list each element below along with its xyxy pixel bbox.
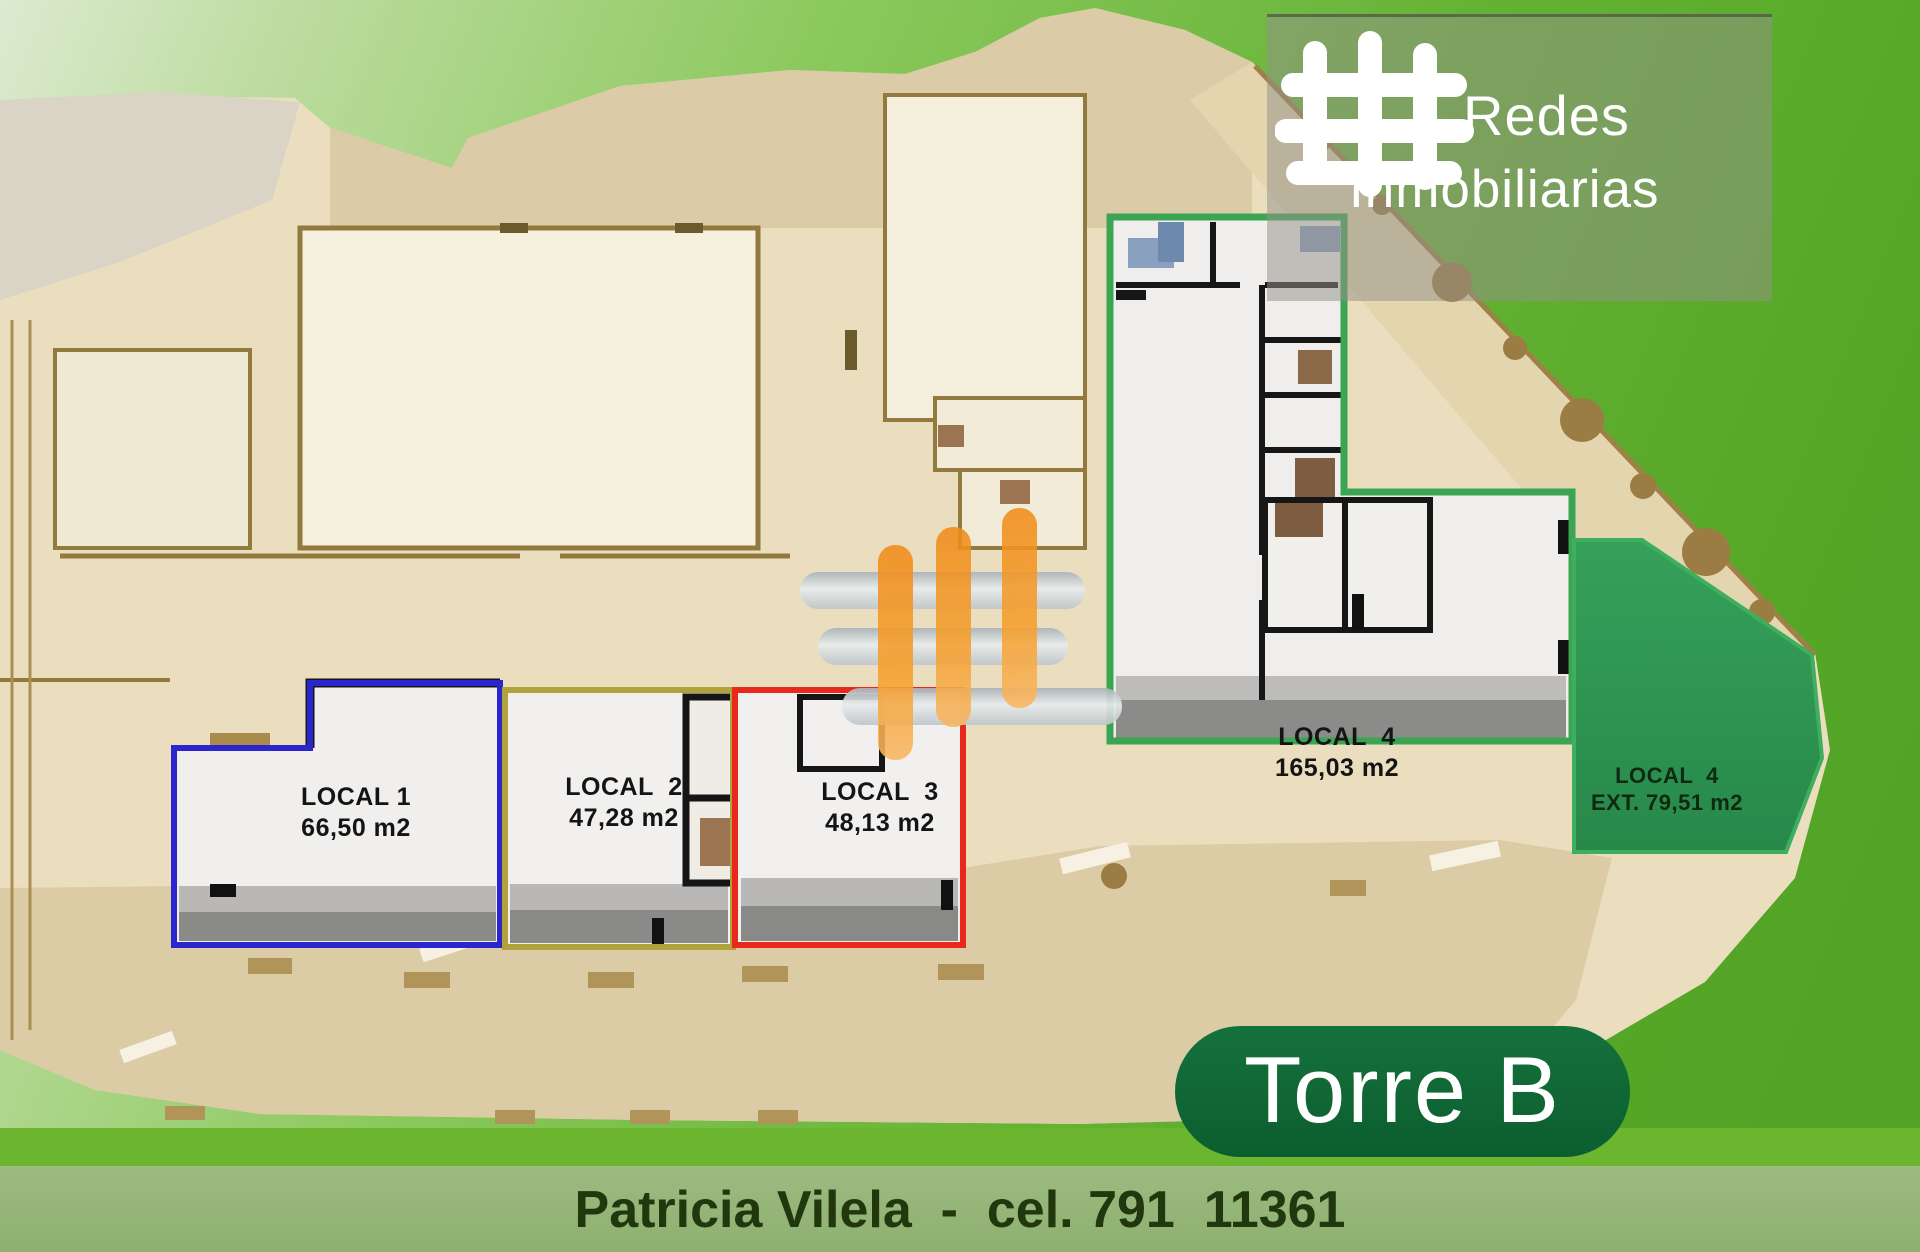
contact-phone: cel. 791 11361 (987, 1181, 1346, 1239)
brand-name-line2: Inmobiliarias (1349, 159, 1660, 220)
local-4-name: LOCAL 4 (1227, 722, 1447, 753)
contact-separator: - (912, 1181, 987, 1239)
local-3-name: LOCAL 3 (770, 777, 990, 808)
brand-name-line1: Redes (1463, 83, 1630, 148)
local-2-name: LOCAL 2 (514, 772, 734, 803)
local-2-area: 47,28 m2 (514, 803, 734, 834)
tower-badge: Torre B (1175, 1026, 1630, 1157)
local-3-area: 48,13 m2 (770, 808, 990, 839)
local-4-label: LOCAL 4 165,03 m2 (1227, 722, 1447, 784)
flyer-canvas: LOCAL 1 66,50 m2 LOCAL 2 47,28 m2 LOCAL … (0, 0, 1920, 1252)
local-1-label: LOCAL 1 66,50 m2 (246, 782, 466, 844)
local-1-name: LOCAL 1 (246, 782, 466, 813)
brand-panel: Redes Inmobiliarias (1267, 14, 1772, 301)
local-3-label: LOCAL 3 48,13 m2 (770, 777, 990, 839)
local-4-ext-name: LOCAL 4 (1557, 762, 1777, 789)
local-1-area: 66,50 m2 (246, 813, 466, 844)
local-4-area: 165,03 m2 (1227, 753, 1447, 784)
contact-name: Patricia Vilela (575, 1181, 912, 1239)
local-4-ext-area: EXT. 79,51 m2 (1557, 789, 1777, 816)
local-2-label: LOCAL 2 47,28 m2 (514, 772, 734, 834)
local-4-ext-label: LOCAL 4 EXT. 79,51 m2 (1557, 762, 1777, 816)
contact-strip: Patricia Vilela - cel. 791 11361 (0, 1180, 1920, 1240)
bottom-green-band (0, 1128, 1920, 1166)
